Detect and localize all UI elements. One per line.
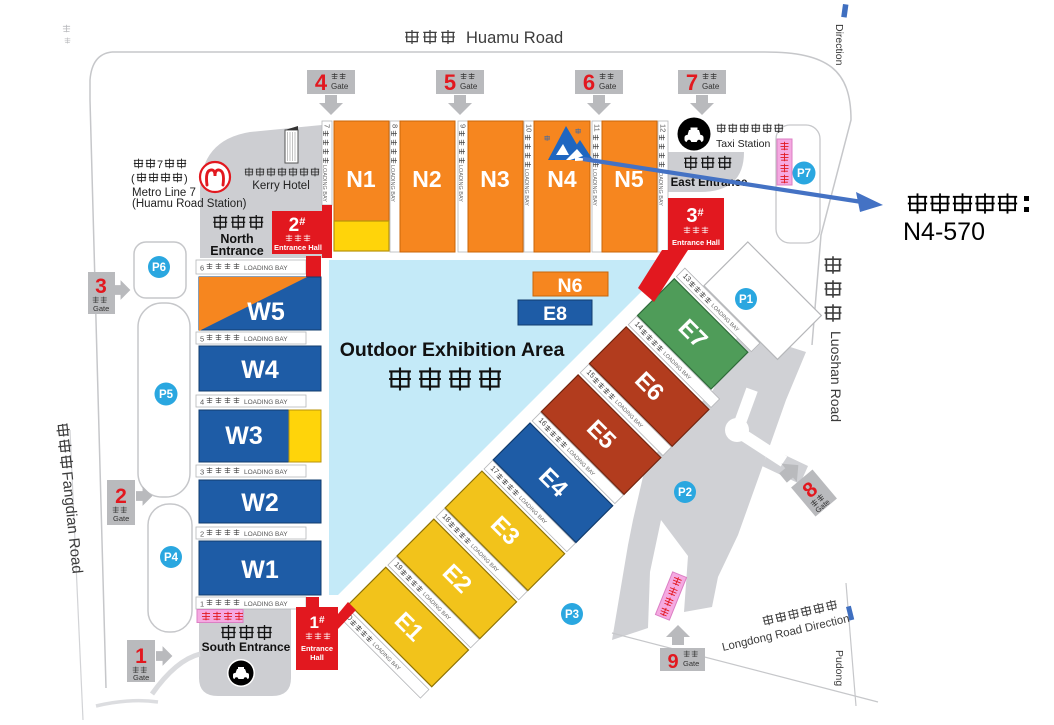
- svg-text:P7: P7: [797, 168, 811, 180]
- svg-text:Gate: Gate: [93, 304, 109, 313]
- svg-text:LOADING BAY: LOADING BAY: [389, 165, 395, 202]
- svg-text:(: (: [131, 173, 135, 185]
- svg-text:7: 7: [322, 124, 331, 128]
- svg-text:11: 11: [592, 124, 601, 132]
- svg-text:4: 4: [200, 398, 204, 407]
- svg-text:W2: W2: [241, 489, 279, 517]
- svg-text:Gate: Gate: [683, 659, 699, 668]
- svg-text:LOADING BAY: LOADING BAY: [244, 601, 288, 608]
- svg-text:3: 3: [200, 468, 204, 477]
- svg-text:Gate: Gate: [113, 514, 129, 523]
- svg-text:W1: W1: [241, 556, 279, 584]
- svg-text:): ): [184, 173, 188, 185]
- svg-text:Entrance: Entrance: [301, 644, 333, 653]
- svg-text:N4: N4: [547, 166, 577, 192]
- svg-text:7: 7: [157, 159, 163, 171]
- svg-text:8: 8: [390, 124, 399, 128]
- svg-text:6: 6: [583, 70, 595, 95]
- svg-text:N6: N6: [558, 275, 583, 297]
- svg-text:Gate: Gate: [702, 82, 720, 91]
- svg-text:2: 2: [115, 485, 127, 508]
- svg-text:W4: W4: [241, 356, 279, 384]
- svg-text:Luoshan Road: Luoshan Road: [828, 331, 844, 422]
- svg-text:South Entrance: South Entrance: [202, 640, 291, 654]
- svg-text:9: 9: [458, 124, 467, 128]
- svg-text:N4-570: N4-570: [903, 218, 985, 246]
- svg-text:6: 6: [200, 264, 204, 273]
- svg-text:Pudong: Pudong: [833, 650, 845, 686]
- svg-text:Entrance Hall: Entrance Hall: [672, 238, 720, 247]
- svg-text:LOADING BAY: LOADING BAY: [457, 165, 463, 202]
- svg-text:LOADING BAY: LOADING BAY: [244, 265, 288, 272]
- svg-text:5: 5: [200, 335, 204, 344]
- svg-text:Kerry Hotel: Kerry Hotel: [252, 180, 310, 192]
- svg-text:1: 1: [135, 645, 147, 668]
- svg-text:4: 4: [315, 70, 328, 95]
- svg-text:LOADING BAY: LOADING BAY: [321, 165, 327, 202]
- svg-text:2: 2: [200, 530, 204, 539]
- svg-text:(Huamu Road Station): (Huamu Road Station): [132, 198, 247, 210]
- svg-text:12: 12: [658, 124, 667, 132]
- svg-text:P3: P3: [565, 609, 579, 621]
- svg-text:LOADING BAY: LOADING BAY: [244, 399, 288, 406]
- svg-text:Gate: Gate: [133, 673, 149, 682]
- svg-text:LOADING BAY: LOADING BAY: [244, 531, 288, 538]
- svg-text:N1: N1: [346, 166, 376, 192]
- svg-text:10: 10: [524, 124, 533, 132]
- svg-text:Gate: Gate: [599, 82, 617, 91]
- svg-text:P6: P6: [152, 262, 166, 274]
- svg-text:P4: P4: [164, 552, 179, 564]
- svg-text:LOADING BAY: LOADING BAY: [244, 336, 288, 343]
- svg-text:1: 1: [200, 600, 204, 609]
- svg-text:5: 5: [444, 70, 456, 95]
- svg-text:E8: E8: [543, 303, 567, 325]
- svg-text:N3: N3: [480, 166, 509, 192]
- svg-text:LOADING BAY: LOADING BAY: [244, 469, 288, 476]
- svg-text:N2: N2: [412, 166, 441, 192]
- svg-text:LOADING BAY: LOADING BAY: [657, 169, 663, 206]
- svg-text:Gate: Gate: [331, 82, 349, 91]
- svg-text:Hall: Hall: [310, 653, 324, 662]
- svg-text:P5: P5: [159, 389, 174, 401]
- svg-text:Taxi Station: Taxi Station: [716, 138, 770, 150]
- svg-text:Huamu Road: Huamu Road: [466, 29, 563, 47]
- svg-text:LOADING BAY: LOADING BAY: [523, 169, 529, 206]
- svg-text:P2: P2: [678, 487, 692, 499]
- svg-text:Entrance: Entrance: [210, 244, 264, 258]
- svg-text:3: 3: [95, 275, 107, 298]
- svg-text:9: 9: [667, 651, 678, 673]
- svg-text:Entrance Hall: Entrance Hall: [274, 243, 322, 252]
- svg-text:N5: N5: [614, 166, 644, 192]
- svg-text:7: 7: [686, 70, 698, 95]
- svg-text:Outdoor Exhibition Area: Outdoor Exhibition Area: [340, 339, 565, 361]
- svg-text:Gate: Gate: [460, 82, 478, 91]
- svg-text:W5: W5: [247, 298, 285, 326]
- svg-text:P1: P1: [739, 294, 754, 306]
- svg-text:LOADING BAY: LOADING BAY: [591, 169, 597, 206]
- svg-text:W3: W3: [225, 422, 263, 450]
- svg-text:Direction: Direction: [833, 24, 845, 66]
